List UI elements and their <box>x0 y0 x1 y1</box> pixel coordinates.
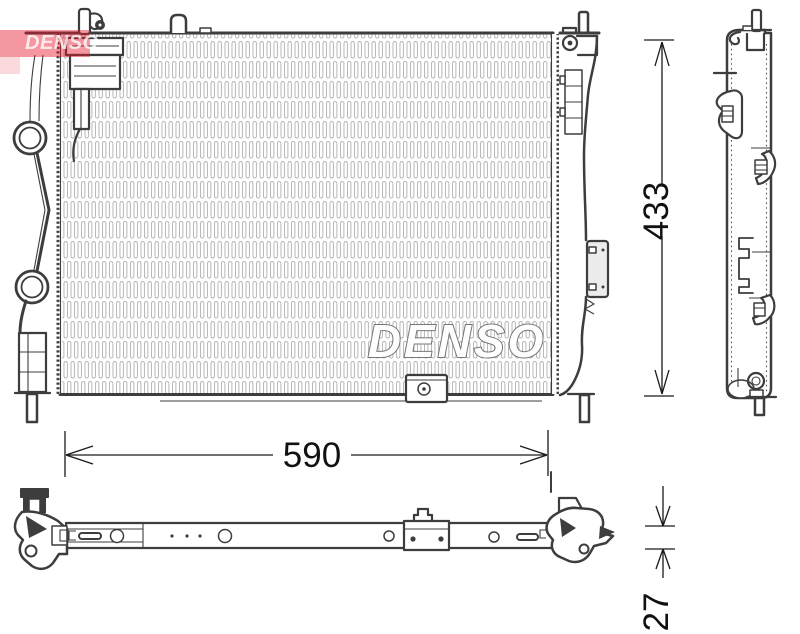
right-tank <box>560 12 608 422</box>
drawing-canvas: DENSO <box>0 0 800 634</box>
depth-dimension-label: 27 <box>637 593 676 632</box>
lower-crossmember <box>66 523 560 548</box>
bottom-center-mount <box>404 509 449 550</box>
height-dimension-label: 433 <box>637 182 676 240</box>
top-mount-stub <box>171 15 211 33</box>
right-serrated-edge <box>551 34 559 394</box>
width-dimension-label: 590 <box>283 436 341 475</box>
radiator-technical-drawing: DENSO <box>0 0 800 634</box>
radiator-bottom-view <box>15 472 615 569</box>
dimension-depth-27: 27 <box>637 486 676 631</box>
denso-corner-logo: DENSO <box>0 30 90 57</box>
bottom-center-bracket <box>406 375 447 402</box>
denso-center-watermark: DENSO <box>368 315 547 367</box>
left-serrated-edge <box>52 34 60 394</box>
bottom-left-mount <box>15 333 50 422</box>
left-tank <box>14 122 49 333</box>
radiator-side-view <box>714 10 776 415</box>
dimension-width-590: 590 <box>65 430 548 477</box>
dimension-height-433: 433 <box>637 40 676 396</box>
denso-corner-logo-text: DENSO <box>0 30 90 57</box>
bottom-left-end-bracket <box>15 488 68 569</box>
bottom-right-end-bracket <box>540 472 615 562</box>
